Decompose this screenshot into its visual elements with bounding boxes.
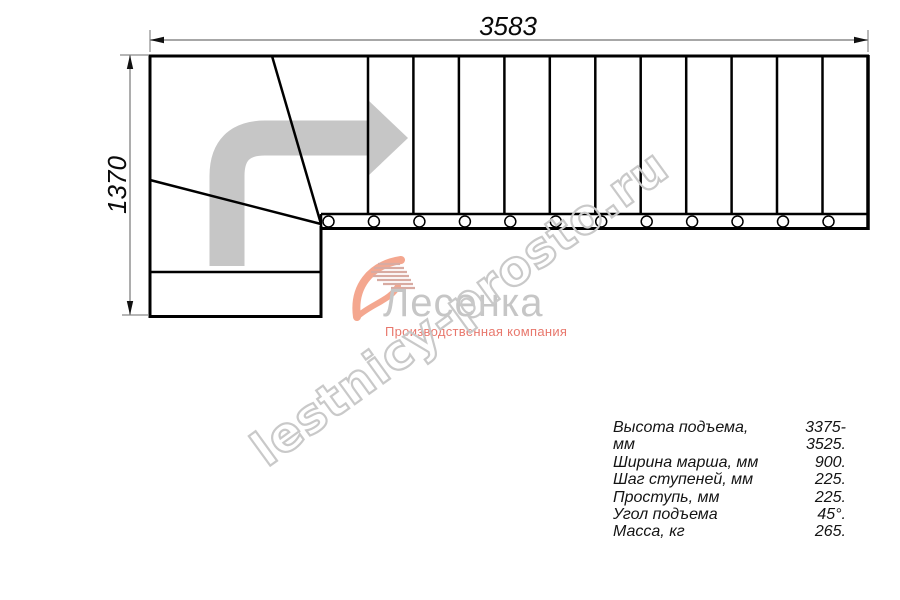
stringer-bolt [368, 216, 379, 227]
spec-value: 3375-3525. [768, 419, 846, 454]
spec-value: 265. [815, 523, 846, 540]
spec-value: 900. [815, 454, 846, 471]
stringer-bolt [687, 216, 698, 227]
stringer-bolt [823, 216, 834, 227]
dimension-arrow-top [127, 55, 133, 69]
spec-label: Ширина марша, мм [613, 454, 758, 471]
spec-value: 225. [815, 489, 846, 506]
stringer-bolt [323, 216, 334, 227]
dimension-width-label: 3583 [479, 11, 537, 41]
direction-arrow [227, 100, 408, 266]
stringer-bolt [732, 216, 743, 227]
spec-label: Угол подъема [613, 506, 718, 523]
dimension-arrow-left [150, 37, 164, 43]
spec-row: Шаг ступеней, мм 225. [613, 471, 846, 488]
spec-row: Высота подъема, мм 3375-3525. [613, 419, 846, 454]
dimension-height-label: 1370 [102, 156, 132, 214]
stringer-bolt [778, 216, 789, 227]
spec-value: 225. [815, 471, 846, 488]
dimension-arrow-right [854, 37, 868, 43]
spec-row: Ширина марша, мм 900. [613, 454, 846, 471]
spec-label: Высота подъема, мм [613, 419, 768, 454]
direction-arrow-head [368, 100, 408, 176]
specs-table: Высота подъема, мм 3375-3525. Ширина мар… [613, 419, 846, 541]
spec-row: Проступь, мм 225. [613, 489, 846, 506]
direction-arrow-shaft [227, 138, 368, 266]
stringer-bolt [641, 216, 652, 227]
stringer-bolt [505, 216, 516, 227]
spec-row: Масса, кг 265. [613, 523, 846, 540]
spec-row: Угол подъема 45°. [613, 506, 846, 523]
dimension-top: 3583 [150, 11, 868, 52]
stringer-bolt [459, 216, 470, 227]
spec-value: 45°. [817, 506, 846, 523]
dimension-left: 1370 [102, 55, 149, 315]
spec-label: Проступь, мм [613, 489, 719, 506]
drawing-sheet: 3583 1370 Лесенка П [0, 0, 900, 600]
spec-label: Шаг ступеней, мм [613, 471, 753, 488]
spec-label: Масса, кг [613, 523, 685, 540]
stringer-bolt [414, 216, 425, 227]
dimension-arrow-bottom [127, 301, 133, 315]
